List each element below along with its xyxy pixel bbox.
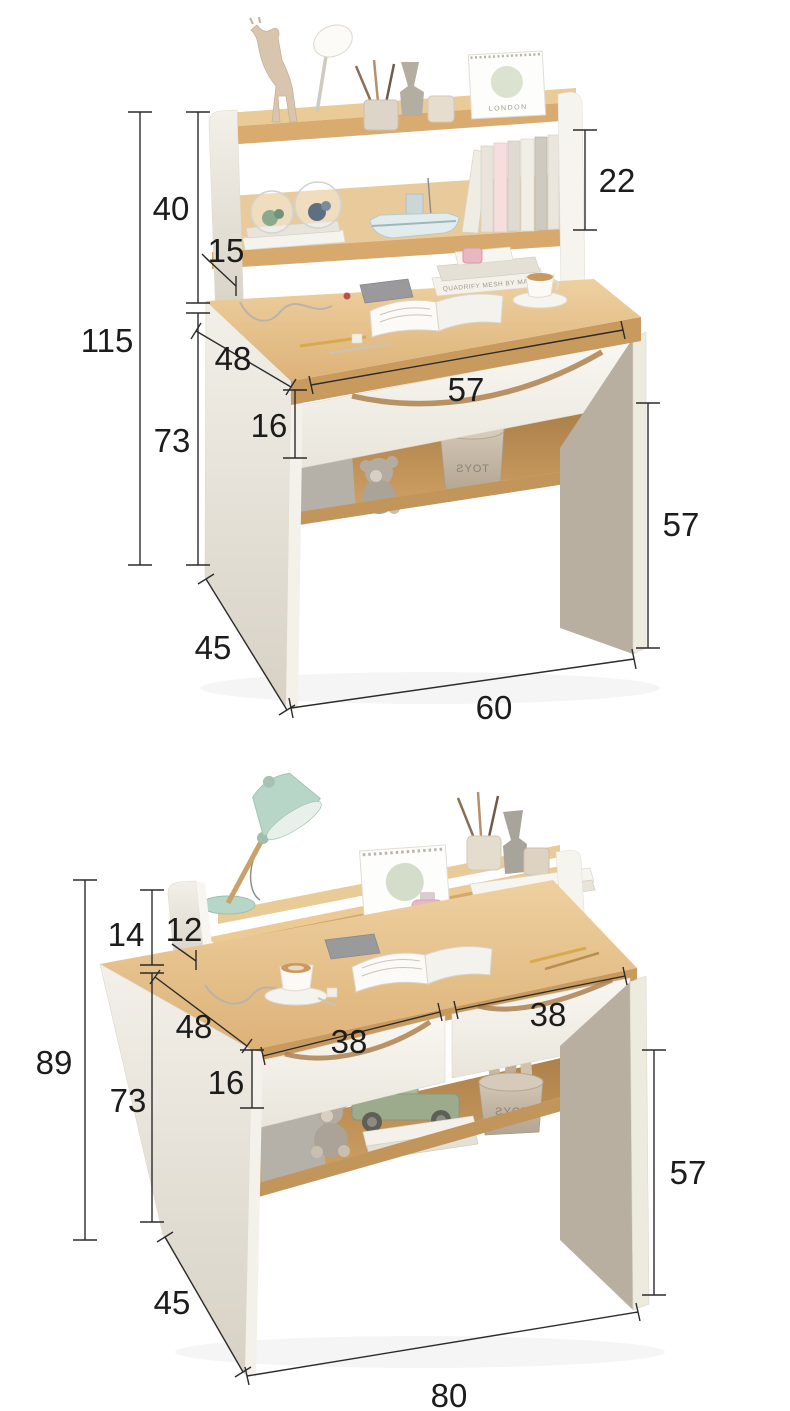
dim-under-desk-clearance: 57 — [642, 1050, 706, 1295]
svg-text:48: 48 — [215, 340, 252, 377]
svg-text:48: 48 — [176, 1008, 213, 1045]
svg-text:57: 57 — [670, 1154, 707, 1191]
desk1-books-row — [462, 135, 559, 233]
svg-text:80: 80 — [431, 1377, 468, 1411]
figure1-desk-photo: LONDON — [0, 0, 790, 720]
desk1-calendar: LONDON — [468, 51, 545, 119]
svg-text:57: 57 — [663, 506, 700, 543]
dim-desk-height: 73 — [154, 313, 210, 565]
svg-text:14: 14 — [108, 916, 145, 953]
figure2-desk-photo: LONDON QUADRIFY MESH BY MAX — [0, 720, 790, 1411]
watch-icon — [463, 248, 482, 263]
svg-text:22: 22 — [599, 162, 636, 199]
svg-text:45: 45 — [154, 1284, 191, 1321]
desk2-lamp-icon — [201, 758, 327, 914]
svg-text:16: 16 — [251, 407, 288, 444]
svg-text:115: 115 — [81, 322, 134, 359]
desk1-lamp-icon — [309, 19, 358, 112]
svg-text:16: 16 — [208, 1064, 245, 1101]
svg-text:60: 60 — [476, 689, 513, 720]
svg-text:40: 40 — [153, 190, 190, 227]
svg-text:57: 57 — [448, 371, 485, 408]
svg-text:15: 15 — [208, 232, 245, 269]
svg-text:73: 73 — [154, 422, 191, 459]
svg-text:45: 45 — [195, 629, 232, 666]
basket-text: TOYS — [455, 463, 489, 475]
svg-text:12: 12 — [166, 911, 203, 948]
dim-total-height: 115 — [81, 112, 152, 565]
svg-text:38: 38 — [331, 1023, 368, 1060]
svg-text:89: 89 — [36, 1044, 73, 1081]
product-dimension-sheet: LONDON — [0, 0, 790, 1411]
desk1-hutch-right-panel — [558, 92, 585, 292]
svg-text:73: 73 — [110, 1082, 147, 1119]
svg-text:38: 38 — [530, 996, 567, 1033]
dim-total-height: 89 — [36, 880, 97, 1240]
dim-hutch-height: 40 — [153, 112, 210, 303]
giraffe-ornament-icon — [250, 17, 297, 122]
